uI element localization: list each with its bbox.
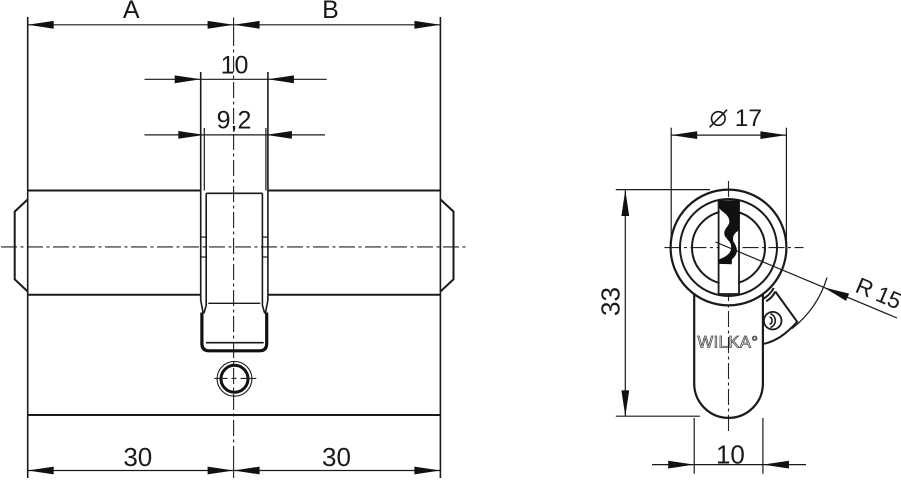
- svg-text:B: B: [322, 0, 339, 24]
- svg-text:17: 17: [735, 105, 762, 132]
- svg-text:10: 10: [716, 439, 745, 469]
- svg-text:A: A: [123, 0, 140, 24]
- svg-text:WILKA°: WILKA°: [698, 334, 759, 352]
- svg-text:10: 10: [221, 52, 249, 80]
- svg-text:30: 30: [123, 442, 152, 472]
- svg-text:9,2: 9,2: [217, 107, 252, 135]
- svg-text:33: 33: [596, 287, 626, 316]
- svg-text:30: 30: [322, 442, 351, 472]
